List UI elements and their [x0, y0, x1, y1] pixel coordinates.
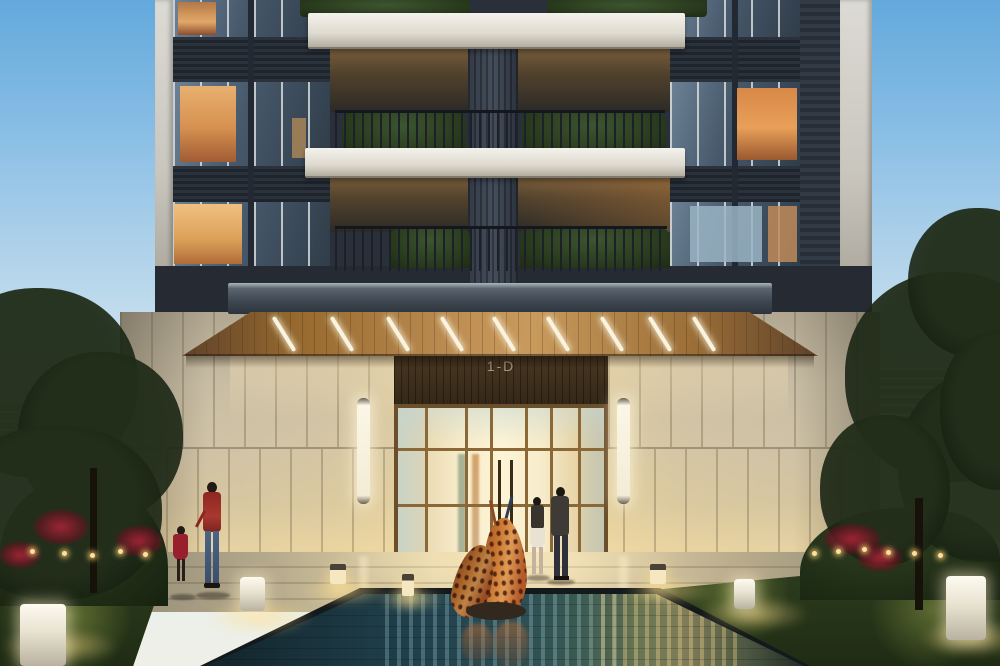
garden-light: [862, 547, 867, 552]
wall-sconce-light: [617, 398, 630, 504]
canopy-light-strip: [692, 316, 717, 352]
tower-side-louvers: [800, 0, 840, 290]
lit-window: [174, 204, 242, 264]
canopy-light-strip: [330, 316, 355, 352]
bollard-light: [734, 579, 755, 609]
leg: [562, 535, 568, 577]
canopy-light-strip: [386, 316, 411, 352]
garden-light: [886, 550, 891, 555]
ground-uplight: [402, 574, 414, 596]
shoes: [204, 583, 220, 588]
garden-light: [143, 552, 148, 557]
lit-window: [737, 88, 797, 160]
leg: [182, 559, 185, 581]
leg-jeans: [213, 531, 219, 584]
sculpture-base: [466, 602, 526, 620]
wall-sconce-light: [357, 398, 370, 504]
garden-light: [812, 551, 817, 556]
lit-window: [690, 206, 762, 262]
window-mullion: [248, 0, 254, 266]
canopy-wood-soffit: [182, 312, 818, 356]
canopy-light-strip: [440, 316, 465, 352]
sculpture-reflection: [494, 622, 528, 666]
canopy-light-strip: [272, 316, 297, 352]
copper-crane-sculpture: [448, 496, 543, 622]
lit-window: [768, 206, 797, 262]
ground-uplight: [650, 564, 666, 584]
leg-jeans: [205, 531, 211, 584]
canopy-shadow: [186, 354, 814, 368]
garden-light: [912, 551, 917, 556]
ground-uplight: [330, 564, 346, 584]
window-flank-left: [173, 0, 330, 290]
canopy-fascia: [228, 283, 772, 314]
sculpture-reflection: [462, 624, 492, 662]
shoes: [554, 576, 569, 580]
garden-light: [836, 549, 841, 554]
red-flower-cluster: [34, 510, 88, 544]
child-red-dress: [169, 526, 193, 596]
garden-light: [118, 549, 123, 554]
lit-window: [292, 118, 306, 158]
leg: [177, 559, 180, 581]
canopy-light-strip: [492, 316, 517, 352]
lit-window: [178, 2, 216, 35]
residential-tower: [155, 0, 872, 313]
architectural-rendering: 1-D: [0, 0, 1000, 666]
canopy-light-strip: [648, 316, 673, 352]
garden-light: [62, 551, 67, 556]
glass-side-tint: [398, 408, 425, 562]
canopy-light-strip: [600, 316, 625, 352]
light-glow: [700, 596, 810, 632]
canopy-light-strip: [546, 316, 571, 352]
light-glow: [622, 576, 712, 606]
door-transom-rail: [398, 448, 604, 451]
woman-with-child: [197, 482, 229, 594]
tree-trunk: [90, 468, 97, 593]
garden-light: [938, 553, 943, 558]
red-flower-cluster: [0, 542, 40, 568]
glass-sky-reflection: [398, 408, 604, 444]
garden-light: [30, 549, 35, 554]
window-flank-right: [670, 0, 800, 290]
suit-jacket: [551, 496, 569, 536]
door-mullion: [578, 408, 581, 562]
leg: [554, 535, 560, 577]
balcony-slab: [308, 13, 685, 49]
glass-side-tint: [578, 408, 604, 562]
garden-light: [90, 553, 95, 558]
dress: [173, 534, 188, 560]
bollard-light: [240, 577, 265, 611]
balcony-railing: [335, 226, 667, 271]
lit-window: [180, 86, 236, 162]
couple-man: [547, 487, 573, 581]
bollard-light: [946, 576, 986, 640]
balcony-warm-interior: [520, 176, 670, 232]
door-mullion: [425, 408, 428, 562]
balcony-slab: [305, 148, 685, 178]
bollard-light: [20, 604, 66, 666]
